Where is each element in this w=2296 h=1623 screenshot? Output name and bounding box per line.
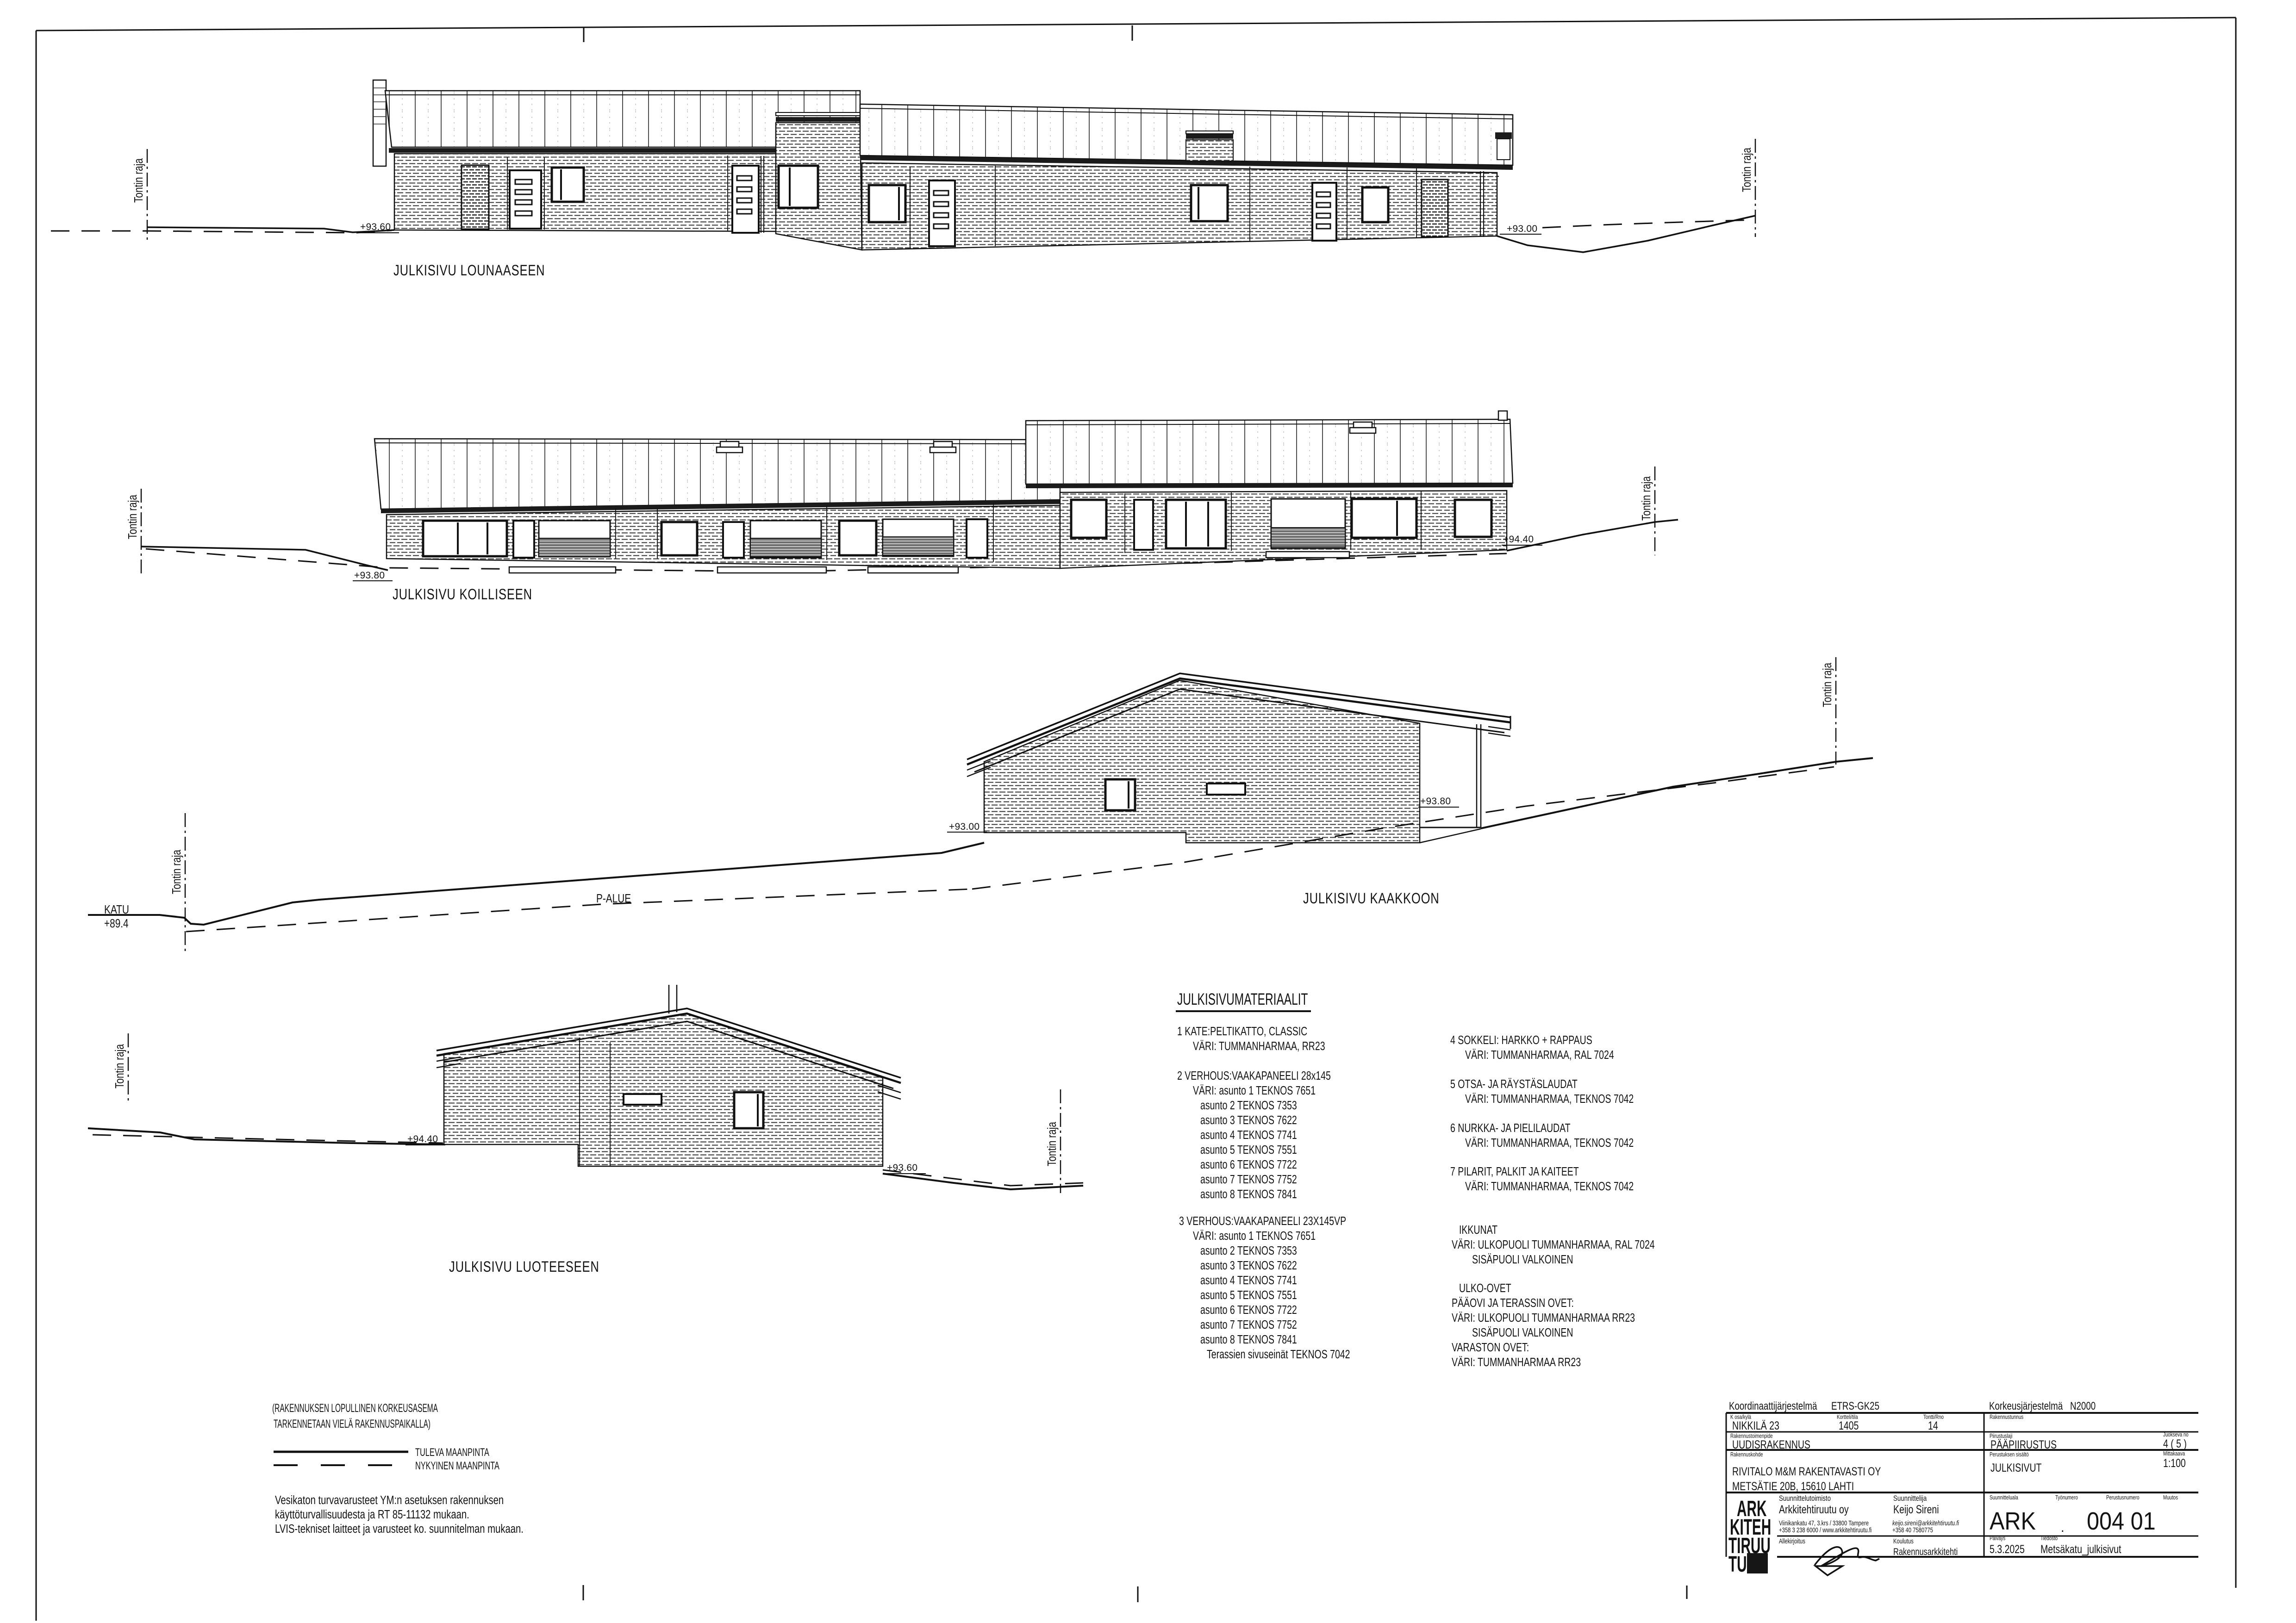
- svg-text:VÄRI: TUMMANHARMAA, TEKNOS 704: VÄRI: TUMMANHARMAA, TEKNOS 7042: [1465, 1179, 1634, 1193]
- svg-text:Rakennustunnus: Rakennustunnus: [1990, 1414, 2023, 1421]
- svg-text:+93.00: +93.00: [1507, 224, 1537, 234]
- svg-text:TU: TU: [1728, 1552, 1747, 1577]
- svg-text:Tontin raja: Tontin raja: [1821, 662, 1834, 707]
- svg-text:Muutos: Muutos: [2163, 1495, 2178, 1501]
- svg-text:SISÄPUOLI VALKOINEN: SISÄPUOLI VALKOINEN: [1472, 1325, 1573, 1339]
- svg-text:JULKISIVUMATERIAALIT: JULKISIVUMATERIAALIT: [1177, 991, 1308, 1008]
- svg-text:+94.40: +94.40: [1503, 534, 1534, 545]
- svg-text:Allekirjoitus: Allekirjoitus: [1779, 1537, 1805, 1545]
- svg-text:VÄRI: ULKOPUOLI TUMMANHARMAA R: VÄRI: ULKOPUOLI TUMMANHARMAA RR23: [1452, 1311, 1635, 1324]
- svg-text:Terassien sivuseinät TEKNOS 70: Terassien sivuseinät TEKNOS 7042: [1207, 1347, 1350, 1361]
- svg-text:Suunnittelija: Suunnittelija: [1893, 1494, 1927, 1503]
- svg-text:Koulutus: Koulutus: [1893, 1537, 1914, 1545]
- svg-text:6 NURKKA- JA PIELILAUDAT: 6 NURKKA- JA PIELILAUDAT: [1450, 1121, 1571, 1134]
- svg-text:VÄRI: TUMMANHARMAA RR23: VÄRI: TUMMANHARMAA RR23: [1452, 1355, 1581, 1368]
- svg-text:7 PILARIT, PALKIT JA KAITEET: 7 PILARIT, PALKIT JA KAITEET: [1450, 1164, 1579, 1178]
- svg-text:RIVITALO M&M RAKENTAVASTI OY: RIVITALO M&M RAKENTAVASTI OY: [1732, 1465, 1881, 1478]
- svg-text:Rakennuskohde: Rakennuskohde: [1730, 1452, 1763, 1458]
- svg-text:Päiväys: Päiväys: [1990, 1536, 2005, 1542]
- svg-text:+93.60: +93.60: [887, 1163, 917, 1173]
- svg-text:VÄRI: TUMMANHARMAA, TEKNOS 704: VÄRI: TUMMANHARMAA, TEKNOS 7042: [1465, 1136, 1634, 1149]
- svg-text:1 KATE:PELTIKATTO, CLASSIC: 1 KATE:PELTIKATTO, CLASSIC: [1177, 1024, 1307, 1038]
- svg-text:UUDISRAKENNUS: UUDISRAKENNUS: [1732, 1438, 1810, 1451]
- svg-text:VÄRI: TUMMANHARMAA, RAL 7024: VÄRI: TUMMANHARMAA, RAL 7024: [1465, 1048, 1614, 1061]
- svg-text:+93.00: +93.00: [949, 821, 980, 832]
- svg-text:asunto 6 TEKNOS 7722: asunto 6 TEKNOS 7722: [1200, 1303, 1297, 1316]
- svg-text:5.3.2025: 5.3.2025: [1990, 1543, 2025, 1556]
- svg-text:ARK: ARK: [1990, 1507, 2036, 1535]
- svg-text:VÄRI: TUMMANHARMAA, RR23: VÄRI: TUMMANHARMAA, RR23: [1193, 1039, 1325, 1052]
- svg-text:VÄRI: ULKOPUOLI TUMMANHARMAA,: VÄRI: ULKOPUOLI TUMMANHARMAA, RAL 7024: [1452, 1237, 1655, 1251]
- svg-text:Tontin raja: Tontin raja: [126, 494, 139, 539]
- svg-text:N2000: N2000: [2070, 1400, 2096, 1412]
- svg-text:Rakennusarkkitehti: Rakennusarkkitehti: [1893, 1546, 1958, 1557]
- svg-text:+358 40 7580775: +358 40 7580775: [1892, 1526, 1933, 1534]
- svg-text:.: .: [2061, 1520, 2065, 1536]
- svg-text:14: 14: [1928, 1419, 1938, 1432]
- svg-text:asunto 3 TEKNOS 7622: asunto 3 TEKNOS 7622: [1200, 1113, 1297, 1126]
- svg-text:+93.80: +93.80: [354, 570, 385, 581]
- svg-text:käyttöturvallisuudesta ja RT 8: käyttöturvallisuudesta ja RT 85-11132 mu…: [275, 1508, 469, 1521]
- svg-text:VÄRI: asunto 1 TEKNOS 7651: VÄRI: asunto 1 TEKNOS 7651: [1193, 1229, 1316, 1242]
- svg-text:ULKO-OVET: ULKO-OVET: [1459, 1281, 1511, 1294]
- svg-text:LVIS-tekniset laitteet ja varu: LVIS-tekniset laitteet ja varusteet ko. …: [275, 1522, 524, 1536]
- svg-text:SISÄPUOLI VALKOINEN: SISÄPUOLI VALKOINEN: [1472, 1252, 1573, 1266]
- svg-text:JULKISIVU KOILLISEEN: JULKISIVU KOILLISEEN: [393, 586, 532, 603]
- svg-text:METSÄTIE 20B, 15610 LAHTI: METSÄTIE 20B, 15610 LAHTI: [1732, 1480, 1854, 1493]
- svg-text:asunto 7 TEKNOS 7752: asunto 7 TEKNOS 7752: [1200, 1172, 1297, 1186]
- svg-text:VÄRI: asunto 1 TEKNOS 7651: VÄRI: asunto 1 TEKNOS 7651: [1193, 1083, 1316, 1097]
- svg-text:Tiedosto: Tiedosto: [2040, 1536, 2058, 1542]
- svg-text:Arkkitehtiruutu oy: Arkkitehtiruutu oy: [1779, 1503, 1849, 1516]
- svg-text:Koordinaattijärjestelmä: Koordinaattijärjestelmä: [1729, 1400, 1817, 1412]
- svg-text:VÄRI: TUMMANHARMAA, TEKNOS 704: VÄRI: TUMMANHARMAA, TEKNOS 7042: [1465, 1092, 1634, 1105]
- svg-text:Tontin raja: Tontin raja: [132, 158, 145, 203]
- svg-text:JULKISIVU LOUNAASEEN: JULKISIVU LOUNAASEEN: [393, 262, 545, 279]
- svg-text:Työnumero: Työnumero: [2055, 1495, 2078, 1501]
- svg-text:Perustuksen sisältö: Perustuksen sisältö: [1990, 1452, 2029, 1458]
- svg-text:+89.4: +89.4: [104, 917, 129, 930]
- svg-text:Tontin raja: Tontin raja: [1045, 1121, 1059, 1166]
- svg-text:5 OTSA- JA RÄYSTÄSLAUDAT: 5 OTSA- JA RÄYSTÄSLAUDAT: [1450, 1077, 1578, 1090]
- svg-text:NIKKILÄ 23: NIKKILÄ 23: [1732, 1419, 1779, 1432]
- svg-text:asunto 4 TEKNOS 7741: asunto 4 TEKNOS 7741: [1200, 1128, 1297, 1141]
- svg-text:asunto 2 TEKNOS 7353: asunto 2 TEKNOS 7353: [1200, 1098, 1297, 1112]
- svg-text:asunto 8 TEKNOS 7841: asunto 8 TEKNOS 7841: [1200, 1332, 1297, 1346]
- svg-text:Tontin raja: Tontin raja: [113, 1044, 126, 1088]
- svg-text:asunto 8 TEKNOS 7841: asunto 8 TEKNOS 7841: [1200, 1187, 1297, 1200]
- svg-text:Perustusnumero: Perustusnumero: [2106, 1495, 2140, 1501]
- svg-text:asunto 5 TEKNOS 7551: asunto 5 TEKNOS 7551: [1200, 1143, 1297, 1156]
- svg-text:Suunnitteluala: Suunnitteluala: [1990, 1495, 2018, 1501]
- svg-text:ETRS-GK25: ETRS-GK25: [1831, 1400, 1879, 1412]
- svg-text:Vesikaton turvavarusteet YM:n: Vesikaton turvavarusteet YM:n asetuksen …: [275, 1493, 504, 1507]
- svg-text:1:100: 1:100: [2163, 1457, 2186, 1470]
- svg-text:Korkeusjärjestelmä: Korkeusjärjestelmä: [1989, 1400, 2063, 1412]
- svg-text:PÄÄOVI JA TERASSIN OVET:: PÄÄOVI JA TERASSIN OVET:: [1452, 1296, 1574, 1309]
- svg-text:JULKISIVUT: JULKISIVUT: [1990, 1461, 2042, 1474]
- svg-text:Mittakaava: Mittakaava: [2163, 1451, 2185, 1457]
- svg-text:JULKISIVU KAAKKOON: JULKISIVU KAAKKOON: [1303, 890, 1440, 907]
- svg-text:PÄÄPIIRUSTUS: PÄÄPIIRUSTUS: [1990, 1438, 2057, 1451]
- svg-text:4 SOKKELI: HARKKO + RAPPAUS: 4 SOKKELI: HARKKO + RAPPAUS: [1450, 1033, 1592, 1046]
- svg-text:asunto 7 TEKNOS 7752: asunto 7 TEKNOS 7752: [1200, 1318, 1297, 1331]
- svg-text:+94.40: +94.40: [407, 1134, 438, 1144]
- svg-text:NYKYINEN MAANPINTA: NYKYINEN MAANPINTA: [415, 1460, 499, 1472]
- svg-text:Metsäkatu_julkisivut: Metsäkatu_julkisivut: [2040, 1543, 2121, 1556]
- svg-text:TARKENNETAAN VIELÄ RAKENNUSPAI: TARKENNETAAN VIELÄ RAKENNUSPAIKALLA): [274, 1418, 430, 1430]
- svg-text:Tontin raja: Tontin raja: [170, 849, 183, 894]
- svg-text:VARASTON OVET:: VARASTON OVET:: [1452, 1340, 1529, 1354]
- svg-text:+93.60: +93.60: [360, 222, 391, 232]
- svg-text:asunto 6 TEKNOS 7722: asunto 6 TEKNOS 7722: [1200, 1157, 1297, 1171]
- svg-text:4 ( 5 ): 4 ( 5 ): [2163, 1437, 2187, 1450]
- svg-text:asunto 3 TEKNOS 7622: asunto 3 TEKNOS 7622: [1200, 1258, 1297, 1272]
- svg-text:asunto 2 TEKNOS 7353: asunto 2 TEKNOS 7353: [1200, 1244, 1297, 1257]
- svg-text:TULEVA MAANPINTA: TULEVA MAANPINTA: [415, 1446, 489, 1459]
- svg-text:(RAKENNUKSEN LOPULLINEN KORKEU: (RAKENNUKSEN LOPULLINEN KORKEUSASEMA: [272, 1402, 438, 1415]
- svg-text:1405: 1405: [1839, 1419, 1859, 1432]
- svg-text:3 VERHOUS:VAAKAPANEELI 23X145V: 3 VERHOUS:VAAKAPANEELI 23X145VP: [1179, 1214, 1346, 1227]
- svg-text:2 VERHOUS:VAAKAPANEELI 28x145: 2 VERHOUS:VAAKAPANEELI 28x145: [1177, 1069, 1331, 1082]
- svg-text:+358 3 238 6000 / www.arkkit: +358 3 238 6000 / www.arkkitehtiruutu.fi: [1779, 1526, 1872, 1534]
- svg-text:Tontin raja: Tontin raja: [1640, 476, 1653, 521]
- svg-text:Tontin raja: Tontin raja: [1740, 147, 1753, 192]
- svg-text:IKKUNAT: IKKUNAT: [1459, 1223, 1497, 1236]
- svg-text:+93.80: +93.80: [1420, 796, 1451, 807]
- svg-text:004 01: 004 01: [2087, 1507, 2156, 1535]
- svg-text:Suunnittelutoimisto: Suunnittelutoimisto: [1779, 1494, 1831, 1503]
- svg-text:asunto 5 TEKNOS 7551: asunto 5 TEKNOS 7551: [1200, 1288, 1297, 1301]
- svg-text:Keijo Sireni: Keijo Sireni: [1893, 1503, 1939, 1516]
- svg-text:asunto 4 TEKNOS 7741: asunto 4 TEKNOS 7741: [1200, 1273, 1297, 1287]
- svg-text:JULKISIVU LUOTEESEEN: JULKISIVU LUOTEESEEN: [449, 1259, 599, 1275]
